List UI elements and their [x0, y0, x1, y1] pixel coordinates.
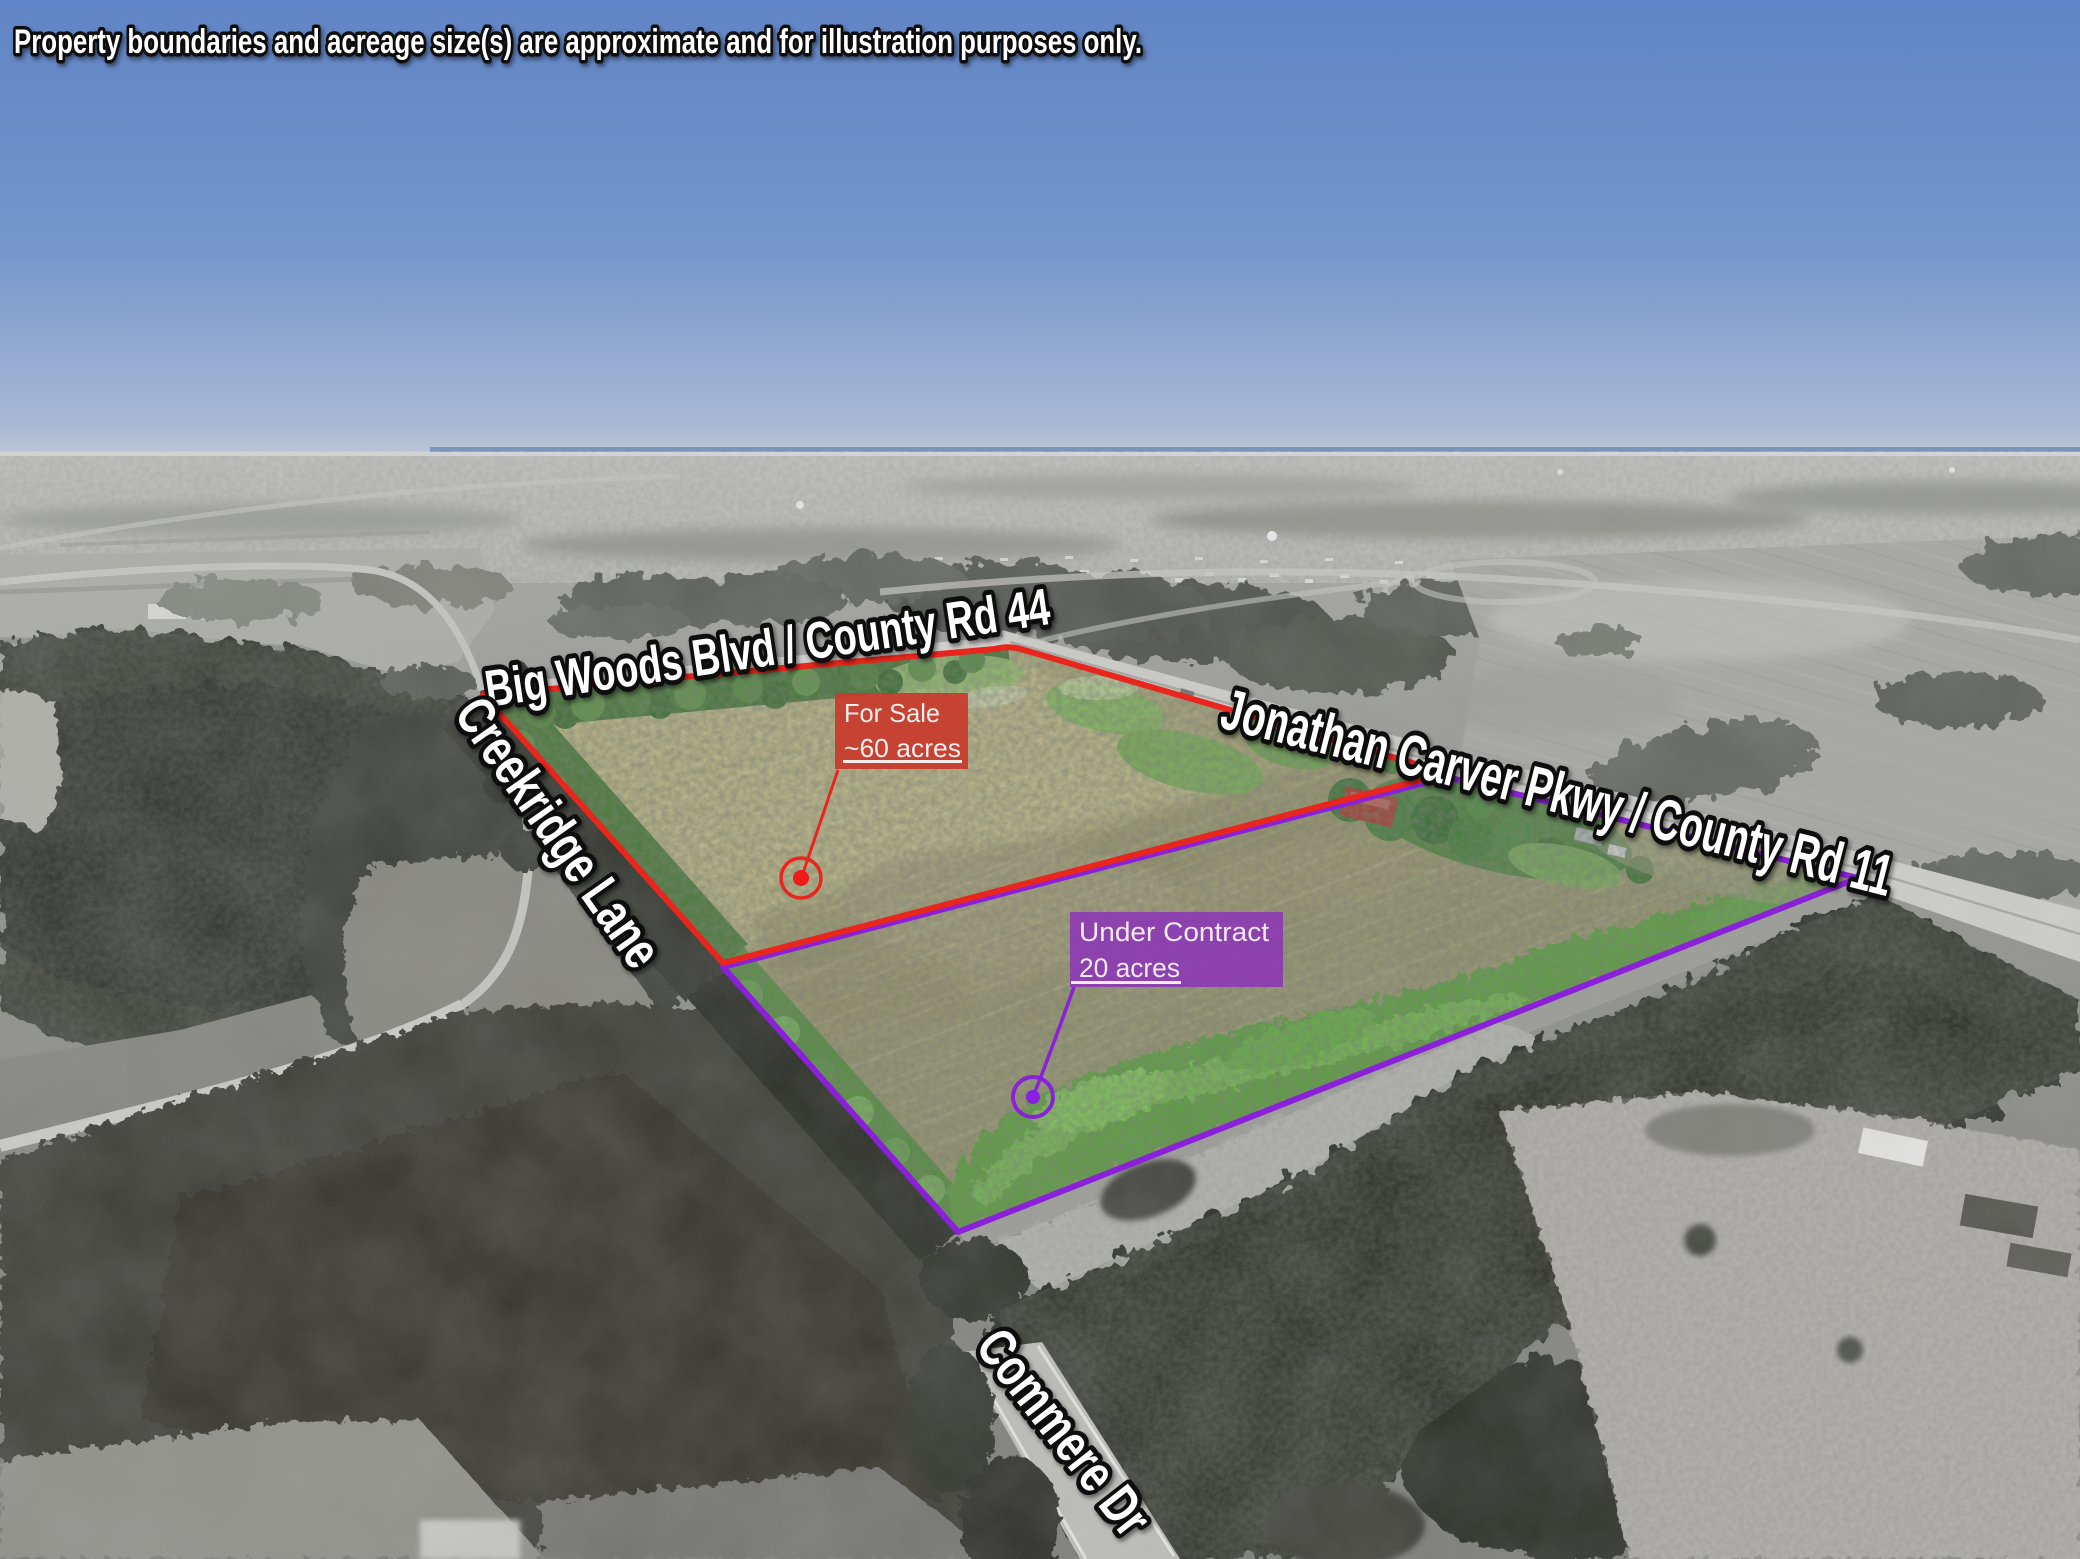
svg-text:For Sale: For Sale [844, 698, 940, 728]
svg-text:Property boundaries and acreag: Property boundaries and acreage size(s) … [14, 23, 1142, 61]
svg-text:~60 acres: ~60 acres [844, 733, 961, 763]
svg-text:20 acres: 20 acres [1079, 953, 1180, 983]
svg-text:Under Contract: Under Contract [1079, 917, 1270, 947]
